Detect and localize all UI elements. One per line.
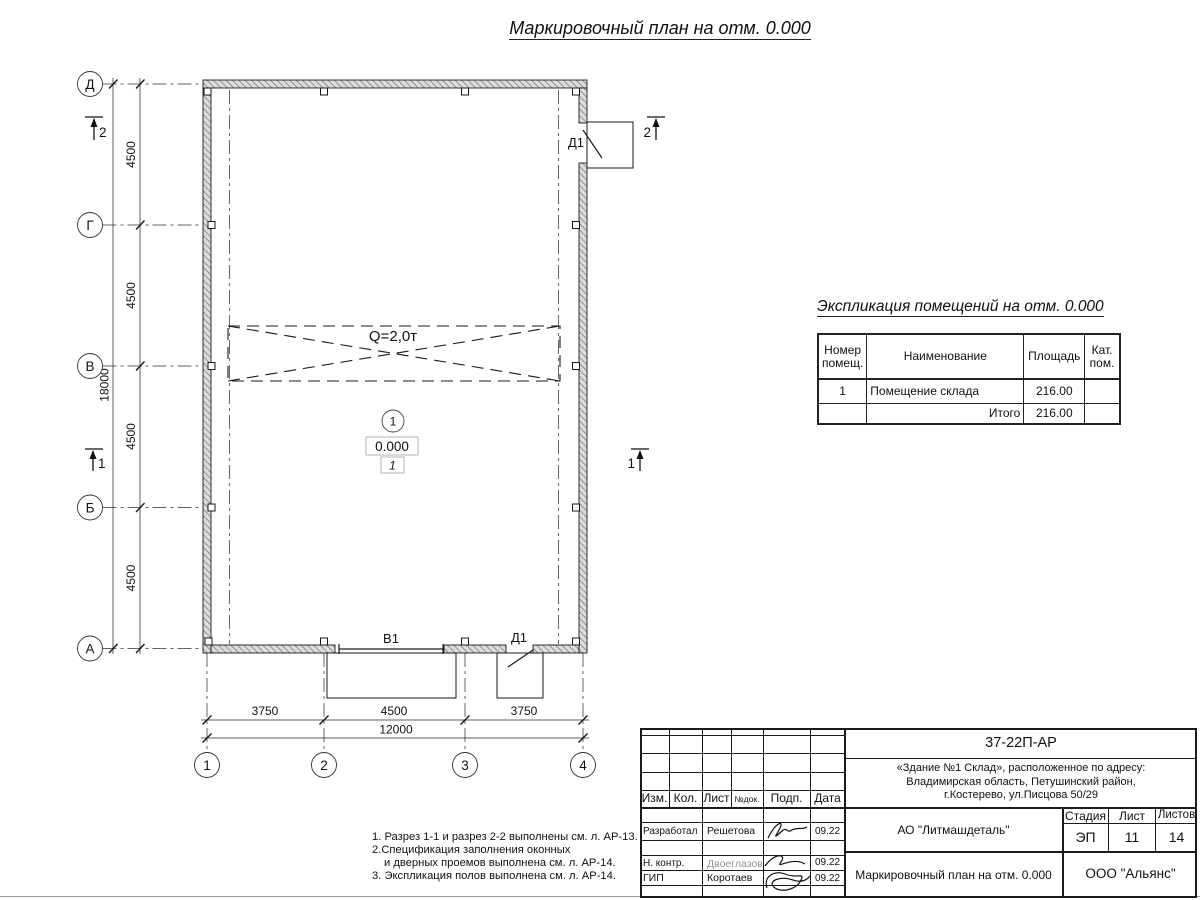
tb-col-podp: Подп. — [763, 791, 810, 805]
axis-label-row: Д — [85, 77, 94, 92]
tb-sheet-label: Лист — [1109, 809, 1155, 823]
door-tag-top: Д1 — [568, 135, 584, 150]
page-title-text: Маркировочный план на отм. 0.000 — [509, 18, 811, 40]
tb-name: Коротаев — [707, 872, 762, 884]
tb-date: 09.22 — [810, 826, 845, 837]
col-header-room-number: Номер помещ. — [818, 334, 867, 379]
axis-grid — [103, 84, 584, 752]
title-block: Изм. Кол. Лист №док. Подп. Дата Разработ… — [640, 728, 1197, 898]
signature-1 — [764, 818, 810, 842]
wall-bottom-3 — [533, 645, 579, 653]
note-line: 1. Разрез 1-1 и разрез 2-2 выполнены см.… — [372, 831, 638, 844]
axis-label-col: 2 — [320, 758, 328, 773]
note-line: и дверных проемов выполнена см. л. АР-14… — [372, 857, 638, 870]
column-marks — [204, 88, 580, 645]
dim-label: 4500 — [124, 141, 138, 168]
floor-plan: Д1 В1 Д1 Q=2,0т 1 0.000 1 — [0, 0, 760, 810]
tb-name: Двоеглазов — [707, 858, 762, 870]
wall-top — [203, 80, 587, 88]
tb-sheets-label: Листов — [1156, 809, 1197, 821]
dim-label: 3750 — [252, 704, 279, 718]
note-line: 3. Экспликация полов выполнена см. л. АР… — [372, 870, 638, 883]
door-leaf-top — [583, 130, 602, 158]
dim-label: 4500 — [124, 423, 138, 450]
page-title: Маркировочный план на отм. 0.000 — [470, 18, 850, 39]
floor-type-mark: 1 — [389, 459, 396, 473]
section-label: 2 — [99, 125, 107, 140]
tb-sheets-value: 14 — [1156, 829, 1197, 845]
signature-2 — [761, 850, 813, 896]
drawing-sheet: { "title": "Маркировочный план на отм. 0… — [0, 0, 1200, 900]
gate-ramp — [327, 653, 456, 698]
tb-address: «Здание №1 Склад», расположенное по адре… — [845, 762, 1197, 803]
cell-area: 216.00 — [1024, 379, 1085, 403]
crane-capacity-label: Q=2,0т — [369, 328, 417, 345]
axis-label-col: 1 — [203, 758, 211, 773]
note-line: 2.Спецификация заполнения оконных — [372, 844, 638, 857]
cell-room-number: 1 — [818, 379, 867, 403]
axis-bubble-labels: Д Г В Б А 1 2 3 4 — [85, 77, 587, 773]
room-number: 1 — [390, 415, 397, 429]
section-label: 2 — [643, 125, 651, 140]
door-tag-bottom: Д1 — [511, 630, 527, 645]
tb-name: Решетова — [707, 825, 762, 837]
tb-role: Разработал — [643, 826, 702, 837]
tb-company: АО "Литмашдеталь" — [845, 823, 1062, 837]
section-label: 1 — [627, 456, 635, 471]
wall-bottom-1 — [211, 645, 335, 653]
wall-right-upper — [579, 88, 587, 123]
dim-label: 4500 — [124, 282, 138, 309]
tb-col-kol: Кол. — [669, 791, 702, 805]
axis-label-row: Г — [86, 218, 94, 233]
tb-col-list: Лист — [702, 791, 731, 805]
wall-bottom-2 — [444, 645, 506, 653]
cell-room-name: Помещение склада — [867, 379, 1024, 403]
dim-label: 4500 — [381, 704, 408, 718]
total-label: Итого — [867, 403, 1024, 424]
wall-left — [203, 88, 211, 653]
col-header-name: Наименование — [867, 334, 1024, 379]
tb-col-data: Дата — [810, 791, 845, 805]
tb-role: Н. контр. — [643, 858, 702, 869]
notes-block: 1. Разрез 1-1 и разрез 2-2 выполнены см.… — [372, 831, 638, 883]
dim-label: 3750 — [511, 704, 538, 718]
room-markers: 1 0.000 1 — [366, 410, 418, 473]
axis-bubbles — [78, 72, 596, 778]
tb-drawing-name: Маркировочный план на отм. 0.000 — [845, 868, 1062, 882]
tb-sheet-value: 11 — [1109, 829, 1155, 845]
tb-org: ООО "Альянс" — [1064, 866, 1197, 881]
explication-table: Номер помещ. Наименование Площадь Кат. п… — [817, 333, 1121, 425]
table-total-row: Итого 216.00 — [818, 403, 1120, 424]
total-value: 216.00 — [1024, 403, 1085, 424]
tb-col-ndok: №док. — [731, 794, 763, 804]
tb-role: ГИП — [643, 872, 702, 884]
axis-label-row: Б — [86, 501, 95, 516]
wall-right-lower — [579, 163, 587, 653]
section-marks — [85, 117, 665, 471]
axis-label-col: 3 — [461, 758, 469, 773]
section-mark-labels: 2 1 2 1 — [98, 125, 651, 471]
tb-date: 09.22 — [810, 873, 845, 884]
axis-label-row: В — [85, 359, 94, 374]
tb-stage-label: Стадия — [1063, 809, 1108, 823]
table-row: 1 Помещение склада 216.00 — [818, 379, 1120, 403]
axis-label-row: А — [85, 642, 94, 657]
elevation-mark: 0.000 — [375, 439, 409, 454]
dim-label: 4500 — [124, 564, 138, 591]
col-header-category: Кат. пом. — [1085, 334, 1120, 379]
section-label: 1 — [98, 456, 106, 471]
tb-col-izm: Изм. — [640, 791, 669, 805]
cell-category — [1085, 379, 1120, 403]
axis-label-col: 4 — [579, 758, 587, 773]
walls — [203, 80, 587, 653]
dim-total-label: 12000 — [379, 723, 413, 737]
col-header-area: Площадь — [1024, 334, 1085, 379]
gate-tag: В1 — [383, 631, 399, 646]
entry-porch-bottom — [497, 653, 543, 698]
tb-date: 09.22 — [810, 857, 845, 868]
explication-title: Экспликация помещений на отм. 0.000 — [817, 298, 1104, 316]
tb-doc-number: 37-22П-АР — [845, 735, 1197, 751]
tb-stage-value: ЭП — [1063, 829, 1108, 845]
